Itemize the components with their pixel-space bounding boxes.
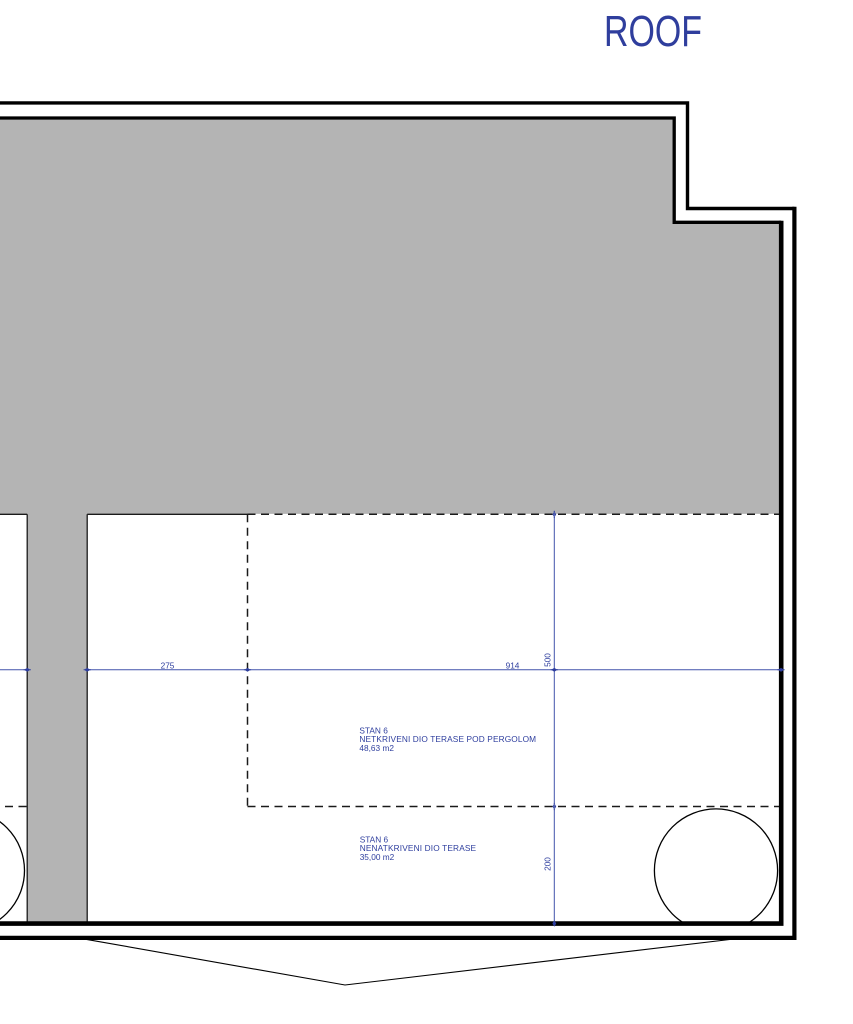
svg-text:200: 200 (543, 857, 553, 871)
svg-text:500: 500 (543, 653, 553, 667)
svg-text:914: 914 (506, 660, 520, 670)
svg-text:35,00 m2: 35,00 m2 (360, 852, 395, 862)
svg-text:275: 275 (161, 660, 175, 670)
svg-text:48,63 m2: 48,63 m2 (359, 743, 394, 753)
svg-text:ROOF: ROOF (604, 7, 702, 56)
